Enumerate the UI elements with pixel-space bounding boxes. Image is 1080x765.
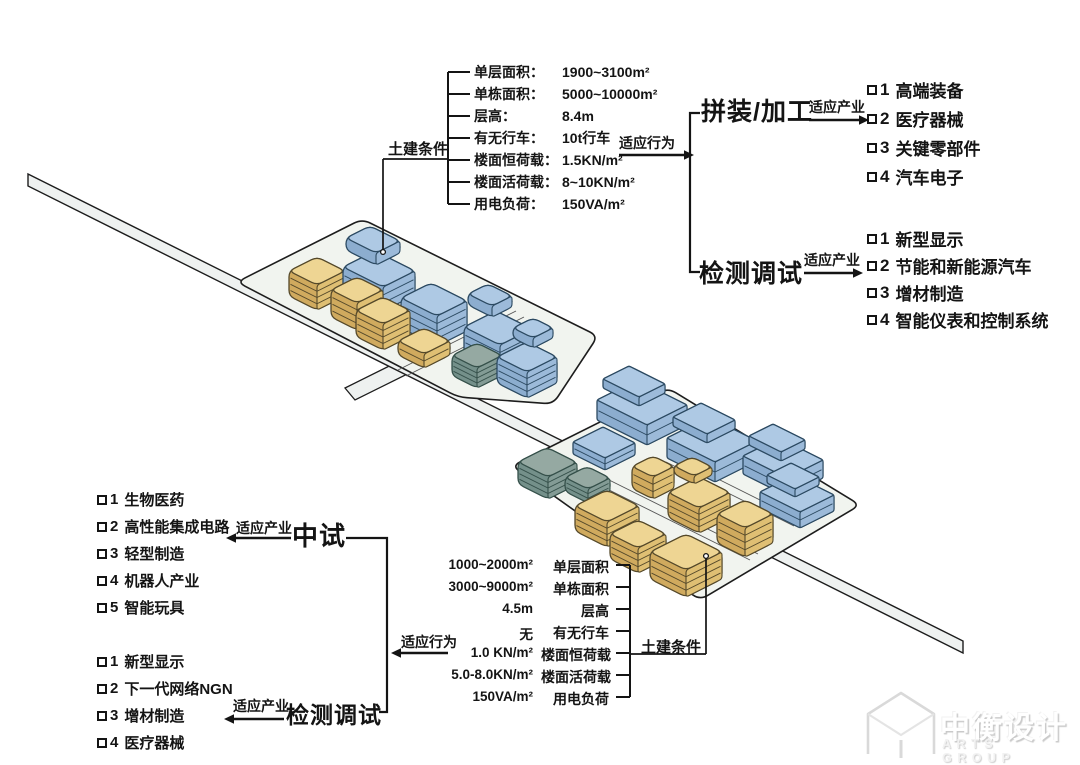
connector-line (448, 72, 470, 204)
item-label: 关键零部件 (895, 135, 980, 160)
checkbox-square-icon (97, 603, 107, 613)
list-item: 3轻型制造 (97, 540, 229, 567)
condition-value: 无 (408, 623, 533, 643)
item-number: 2 (110, 518, 118, 535)
arrowhead-icon (853, 268, 863, 278)
checkbox-square-icon (97, 738, 107, 748)
condition-value: 150VA/m² (562, 196, 625, 212)
item-label: 下一代网络NGN (124, 678, 232, 699)
checkbox-square-icon (867, 114, 877, 124)
condition-value: 10t行车 (562, 128, 610, 148)
condition-label: 层高： (474, 106, 562, 126)
item-label: 增材制造 (895, 280, 963, 305)
item-label: 轻型制造 (124, 543, 184, 564)
arrowhead-icon (391, 648, 401, 658)
checkbox-square-icon (97, 522, 107, 532)
list-item: 1生物医药 (97, 486, 229, 513)
list-item: 2节能和新能源汽车 (867, 252, 1048, 279)
condition-value: 1.0 KN/m² (408, 645, 533, 660)
checkbox-square-icon (867, 261, 877, 271)
list-item: 4汽车电子 (867, 162, 980, 191)
condition-row: 楼面恒荷载：1.5KN/m² (474, 149, 657, 171)
item-number: 4 (110, 572, 118, 589)
branch-pilot-test: 中试 (292, 522, 346, 551)
item-label: 汽车电子 (895, 164, 963, 189)
item-number: 3 (880, 283, 889, 303)
connector-line (616, 565, 630, 697)
building (717, 501, 773, 556)
list-item: 5智能玩具 (97, 594, 229, 621)
branch-test-debug-left: 检测调试 (286, 703, 382, 728)
item-label: 高性能集成电路 (124, 516, 229, 537)
item-label: 医疗器械 (895, 106, 963, 131)
top-civil-conditions-title: 土建条件 (388, 142, 448, 159)
checkbox-square-icon (867, 315, 877, 325)
leader-dot (381, 250, 386, 255)
item-number: 1 (110, 491, 118, 508)
bottom-civil-conditions-title: 土建条件 (641, 640, 701, 657)
condition-label: 用电负荷： (474, 194, 562, 214)
condition-row: 单层面积：1900~3100m² (474, 61, 657, 83)
checkbox-square-icon (867, 85, 877, 95)
checkbox-square-icon (97, 576, 107, 586)
item-number: 2 (880, 109, 889, 129)
condition-value: 3000~9000m² (408, 579, 533, 594)
branch-assembly-processing: 拼装/加工 (701, 99, 813, 127)
condition-value: 1.5KN/m² (562, 152, 623, 168)
condition-label: 楼面恒荷载 (541, 645, 609, 665)
list-item: 1新型显示 (97, 648, 233, 675)
condition-row: 用电负荷：150VA/m² (474, 193, 657, 215)
checkbox-square-icon (97, 657, 107, 667)
item-label: 机器人产业 (124, 570, 199, 591)
list-item: 1高端装备 (867, 75, 980, 104)
condition-label: 有无行车 (541, 623, 609, 643)
condition-value: 150VA/m² (408, 689, 533, 704)
checkbox-square-icon (867, 172, 877, 182)
checkbox-square-icon (97, 711, 107, 721)
top-behavior-arrow-label: 适应行为 (619, 136, 675, 151)
condition-value: 8~10KN/m² (562, 174, 635, 190)
item-number: 3 (110, 545, 118, 562)
industry-arrow-label: 适应产业 (809, 100, 865, 115)
industry-list-assembly: 1高端装备 2医疗器械 3关键零部件 4汽车电子 (867, 75, 980, 191)
list-item: 4机器人产业 (97, 567, 229, 594)
industry-list-testing-left: 1新型显示 2下一代网络NGN 3增材制造 4医疗器械 (97, 648, 233, 756)
condition-value: 1000~2000m² (408, 557, 533, 572)
list-item: 3增材制造 (97, 702, 233, 729)
list-item: 3关键零部件 (867, 133, 980, 162)
checkbox-square-icon (97, 549, 107, 559)
item-label: 智能玩具 (124, 597, 184, 618)
condition-label: 有无行车： (474, 128, 562, 148)
list-item: 3增材制造 (867, 279, 1048, 306)
building (632, 457, 674, 498)
house-logo-icon (862, 688, 936, 762)
industry-list-pilot: 1生物医药 2高性能集成电路 3轻型制造 4机器人产业 5智能玩具 (97, 486, 229, 621)
industry-arrow-label: 适应产业 (804, 253, 860, 268)
item-number: 4 (110, 734, 118, 751)
item-number: 4 (880, 310, 889, 330)
condition-label: 单层面积 (541, 557, 609, 577)
item-number: 5 (110, 599, 118, 616)
item-label: 医疗器械 (124, 732, 184, 753)
condition-label: 单栋面积 (541, 579, 609, 599)
condition-value: 5.0-8.0KN/m² (408, 667, 533, 682)
condition-label: 楼面活荷载 (541, 667, 609, 687)
checkbox-square-icon (867, 234, 877, 244)
condition-row: 楼面活荷载：8~10KN/m² (474, 171, 657, 193)
list-item: 2医疗器械 (867, 104, 980, 133)
condition-label: 单层面积： (474, 62, 562, 82)
industry-list-testing: 1新型显示 2节能和新能源汽车 3增材制造 4智能仪表和控制系统 (867, 225, 1048, 333)
checkbox-square-icon (97, 684, 107, 694)
condition-label: 层高 (541, 601, 609, 621)
condition-row: 层高：8.4m (474, 105, 657, 127)
checkbox-square-icon (97, 495, 107, 505)
item-number: 1 (110, 653, 118, 670)
condition-value: 1900~3100m² (562, 64, 650, 80)
condition-row: 单栋面积：5000~10000m² (474, 83, 657, 105)
item-number: 3 (110, 707, 118, 724)
item-number: 2 (110, 680, 118, 697)
list-item: 2下一代网络NGN (97, 675, 233, 702)
item-label: 高端装备 (895, 77, 963, 102)
condition-label: 单栋面积： (474, 84, 562, 104)
connector-line (346, 538, 387, 712)
checkbox-square-icon (867, 143, 877, 153)
list-item: 2高性能集成电路 (97, 513, 229, 540)
item-number: 2 (880, 256, 889, 276)
condition-value: 5000~10000m² (562, 86, 657, 102)
list-item: 1新型显示 (867, 225, 1048, 252)
item-number: 3 (880, 138, 889, 158)
list-item: 4智能仪表和控制系统 (867, 306, 1048, 333)
item-label: 智能仪表和控制系统 (895, 307, 1048, 332)
company-logo-en: ARTS GROUP (942, 737, 1080, 765)
item-label: 新型显示 (895, 226, 963, 251)
industry-arrow-label: 适应产业 (236, 521, 292, 536)
condition-label: 楼面活荷载： (474, 172, 562, 192)
branch-test-debug-right: 检测调试 (699, 261, 803, 289)
condition-value: 4.5m (408, 601, 533, 616)
leader-dot (704, 554, 709, 559)
item-number: 4 (880, 167, 889, 187)
condition-label: 楼面恒荷载： (474, 150, 562, 170)
condition-value: 8.4m (562, 108, 594, 124)
list-item: 4医疗器械 (97, 729, 233, 756)
item-label: 节能和新能源汽车 (895, 253, 1031, 278)
checkbox-square-icon (867, 288, 877, 298)
item-label: 生物医药 (124, 489, 184, 510)
item-label: 新型显示 (124, 651, 184, 672)
connector-line (690, 113, 700, 272)
item-number: 1 (880, 80, 889, 100)
item-label: 增材制造 (124, 705, 184, 726)
condition-label: 用电负荷 (541, 689, 609, 709)
item-number: 1 (880, 229, 889, 249)
industry-arrow-label: 适应产业 (233, 699, 289, 714)
